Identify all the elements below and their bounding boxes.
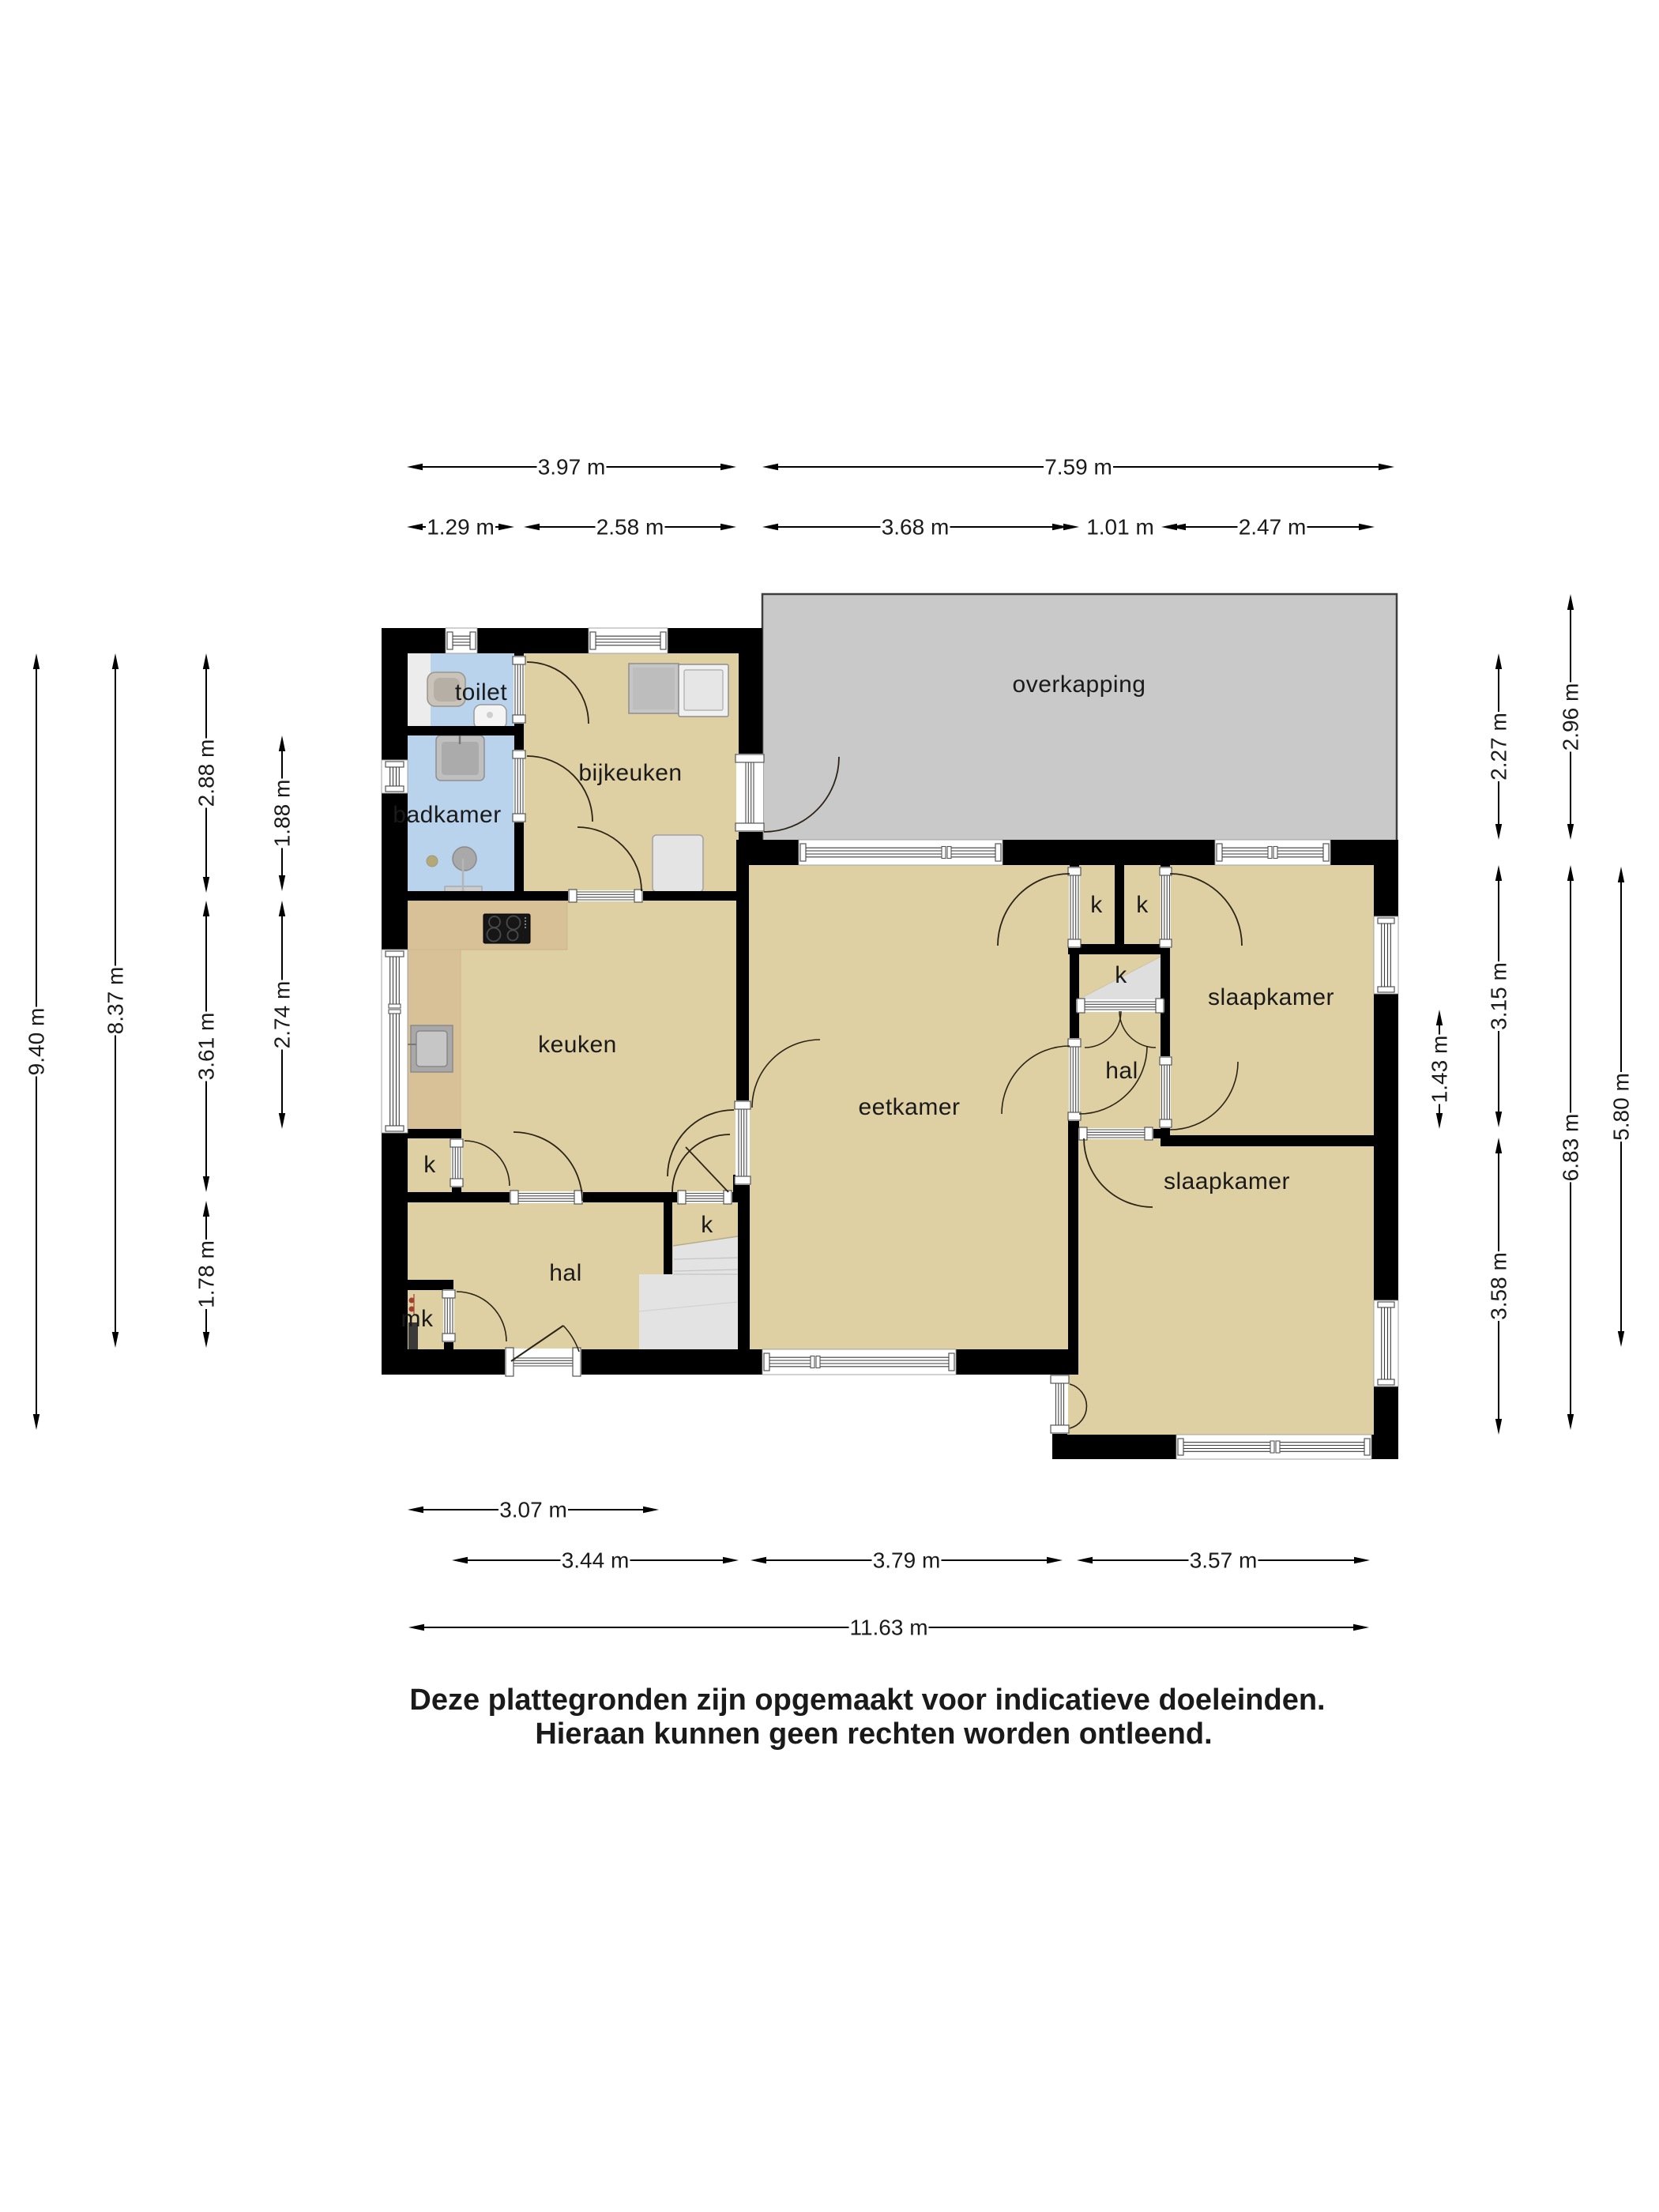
- svg-text:k: k: [423, 1152, 436, 1178]
- svg-text:Deze plattegronden zijn opgema: Deze plattegronden zijn opgemaakt voor i…: [409, 1683, 1325, 1717]
- svg-text:2.58 m: 2.58 m: [596, 515, 664, 540]
- svg-text:1.01 m: 1.01 m: [1086, 515, 1154, 540]
- svg-text:2.47 m: 2.47 m: [1239, 515, 1307, 540]
- svg-text:5.80 m: 5.80 m: [1609, 1073, 1634, 1141]
- svg-text:3.61 m: 3.61 m: [194, 1013, 219, 1081]
- svg-text:3.79 m: 3.79 m: [873, 1548, 941, 1573]
- svg-text:3.97 m: 3.97 m: [538, 455, 606, 480]
- svg-text:overkapping: overkapping: [1013, 671, 1146, 698]
- svg-text:3.15 m: 3.15 m: [1487, 962, 1511, 1030]
- svg-text:badkamer: badkamer: [393, 802, 501, 828]
- svg-text:mk: mk: [401, 1306, 434, 1332]
- svg-text:7.59 m: 7.59 m: [1044, 455, 1112, 480]
- svg-text:keuken: keuken: [538, 1032, 617, 1058]
- svg-text:3.57 m: 3.57 m: [1190, 1548, 1258, 1573]
- svg-text:k: k: [1136, 892, 1149, 918]
- svg-text:3.58 m: 3.58 m: [1487, 1252, 1511, 1320]
- svg-text:toilet: toilet: [455, 679, 508, 705]
- svg-text:hal: hal: [1105, 1058, 1138, 1084]
- svg-text:1.43 m: 1.43 m: [1428, 1036, 1452, 1104]
- svg-text:11.63 m: 11.63 m: [849, 1616, 927, 1640]
- svg-text:3.44 m: 3.44 m: [562, 1548, 630, 1573]
- svg-text:k: k: [1115, 962, 1127, 988]
- svg-text:1.29 m: 1.29 m: [427, 515, 495, 540]
- svg-text:6.83 m: 6.83 m: [1559, 1114, 1583, 1182]
- svg-text:bijkeuken: bijkeuken: [578, 760, 682, 786]
- svg-text:slaapkamer: slaapkamer: [1164, 1168, 1290, 1194]
- svg-text:2.96 m: 2.96 m: [1559, 683, 1583, 751]
- svg-text:2.74 m: 2.74 m: [270, 981, 295, 1049]
- svg-text:2.27 m: 2.27 m: [1487, 713, 1511, 781]
- svg-text:3.07 m: 3.07 m: [499, 1498, 567, 1522]
- svg-text:hal: hal: [549, 1260, 582, 1286]
- svg-text:slaapkamer: slaapkamer: [1208, 984, 1334, 1010]
- svg-text:2.88 m: 2.88 m: [194, 739, 219, 807]
- svg-text:k: k: [1090, 892, 1103, 918]
- svg-text:1.88 m: 1.88 m: [270, 780, 295, 848]
- svg-text:Hieraan kunnen geen rechten wo: Hieraan kunnen geen rechten worden ontle…: [535, 1717, 1212, 1751]
- svg-text:eetkamer: eetkamer: [858, 1094, 960, 1120]
- svg-text:1.78 m: 1.78 m: [194, 1240, 219, 1308]
- svg-text:k: k: [701, 1212, 713, 1238]
- svg-text:9.40 m: 9.40 m: [24, 1008, 49, 1076]
- svg-text:8.37 m: 8.37 m: [103, 967, 128, 1035]
- svg-text:3.68 m: 3.68 m: [882, 515, 950, 540]
